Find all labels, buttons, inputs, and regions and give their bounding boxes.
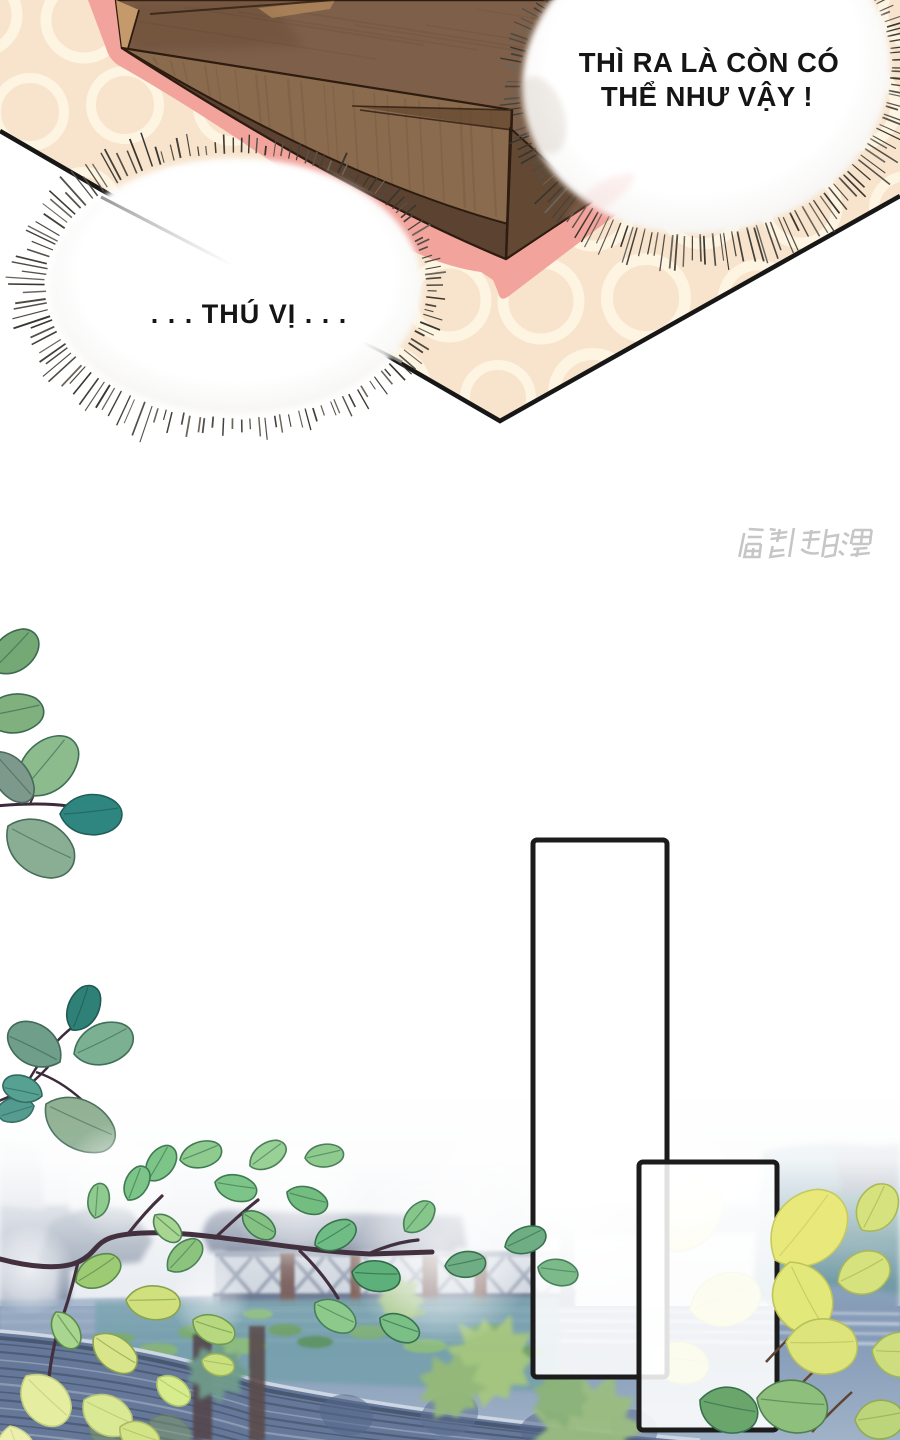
svg-text:THÌ RA LÀ CÒN CÓ: THÌ RA LÀ CÒN CÓ [579, 47, 840, 78]
svg-text:. . . THÚ VỊ . . .: . . . THÚ VỊ . . . [151, 298, 348, 329]
svg-text:THỂ NHƯ VẬY !: THỂ NHƯ VẬY ! [601, 81, 813, 112]
